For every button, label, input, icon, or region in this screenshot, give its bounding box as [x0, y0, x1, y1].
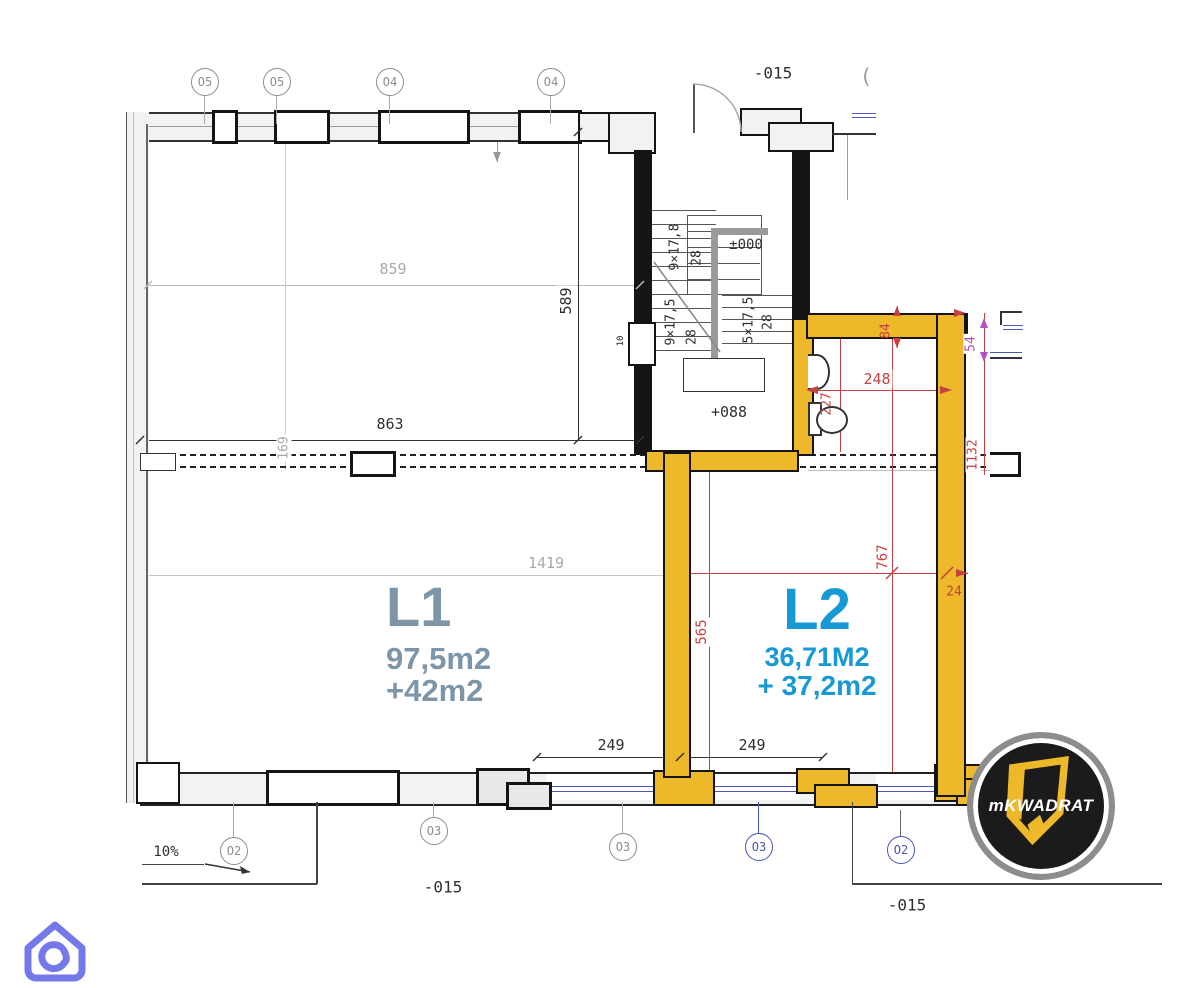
neighbor-line-4	[990, 357, 1022, 359]
dim-248: 248	[861, 370, 892, 388]
grid-line-left	[285, 138, 286, 470]
grid-marker-O2-right: O2	[887, 836, 915, 864]
unit-l2-area: 36,71M2	[747, 643, 887, 671]
dim-169: 169	[277, 434, 292, 461]
wall-continuation-line	[832, 133, 876, 135]
neighbor-wall-mark-2	[1000, 311, 1002, 325]
dim-line-248	[806, 390, 952, 391]
left-wall-line-1	[133, 112, 134, 803]
ramp-bottom-line	[142, 883, 317, 885]
dim-1419: 1419	[526, 554, 566, 572]
glazing-line-2a	[712, 786, 800, 787]
unit-l1-label: L1 97,5m2 +42m2	[386, 578, 491, 708]
top-window-1	[212, 110, 238, 144]
dim-249-left: 249	[595, 736, 626, 754]
bottom-yellow-step-b	[814, 784, 878, 808]
dim-line-1132	[984, 313, 985, 475]
glazing-line-3b	[876, 791, 936, 792]
dim-1132: 1132	[966, 437, 981, 472]
grid-marker-O3-1: O3	[420, 817, 448, 845]
marker-leader	[276, 96, 277, 124]
dashed-axis-1	[140, 454, 1016, 456]
glazing-line-1a	[546, 786, 656, 787]
stair-window	[628, 322, 656, 366]
stair-flight-c-label: 5×17,5	[742, 297, 757, 344]
bottom-opening-1	[546, 774, 656, 800]
tread	[722, 343, 792, 344]
unit-l1-bonus: +42m2	[386, 675, 491, 708]
dim-565: 565	[694, 617, 710, 646]
corner-window	[136, 762, 180, 804]
marker-leader	[622, 802, 623, 833]
grid-marker-O5-2: O5	[263, 68, 291, 96]
handrail-side	[711, 228, 718, 358]
level-label-top: -015	[754, 64, 793, 83]
dim-line-227	[840, 332, 841, 452]
ramp-arrow-line	[205, 864, 250, 872]
stair-tread-c-label: 28	[761, 314, 776, 330]
tread	[652, 210, 716, 211]
l2-right-wall-yellow	[936, 313, 966, 797]
grid-line-stair	[847, 135, 848, 200]
dim-227: 227	[820, 392, 835, 415]
sink	[808, 354, 830, 390]
ramp-slope-line	[142, 864, 204, 865]
neighbor-wall-mark-1	[1000, 311, 1022, 313]
tread	[722, 295, 792, 296]
dim-863: 863	[374, 415, 405, 433]
bottom-window-1	[266, 770, 400, 806]
axis-left-box	[140, 453, 176, 471]
handrail-top	[711, 228, 768, 235]
unit-l1-name: L1	[386, 578, 491, 637]
door-side-wall-b	[768, 122, 834, 152]
mkwadrat-logo: mKWADRAT	[967, 732, 1115, 880]
mkwadrat-logo-text: mKWADRAT	[989, 796, 1094, 816]
unit-l2-label: L2 36,71M2 + 37,2m2	[747, 580, 887, 701]
neighbor-wall-bracket	[990, 452, 1021, 477]
door-leaf	[693, 84, 695, 133]
tread	[722, 331, 792, 332]
level-label-landing: +088	[711, 403, 747, 421]
tread	[652, 322, 716, 323]
marker-leader	[900, 810, 901, 836]
window-mark-10: 10	[616, 336, 626, 347]
stair-wall-left	[634, 150, 652, 455]
grid-marker-O4-1: O4	[376, 68, 404, 96]
stair-landing	[683, 358, 765, 392]
glazing-line-2b	[712, 791, 800, 792]
house-loop-icon	[20, 920, 90, 984]
grid-marker-O4-2: O4	[537, 68, 565, 96]
divider-wall-yellow	[663, 452, 691, 778]
top-window-2	[274, 110, 330, 144]
dim-24: 24	[946, 585, 962, 600]
marker-leader	[233, 802, 234, 837]
neighbor-line-1	[1003, 325, 1023, 326]
grid-marker-partial: (	[860, 64, 872, 88]
stair-flight-a-label: 9×17,5	[664, 299, 679, 346]
glazing-line-1b	[546, 791, 656, 792]
bottom-opening-2	[712, 774, 800, 800]
dim-84: 84	[879, 323, 894, 339]
bottom-opening-3	[876, 774, 936, 800]
unit-l2-bonus: + 37,2m2	[747, 671, 887, 700]
grid-marker-O5-1: O5	[191, 68, 219, 96]
tread	[722, 307, 792, 308]
grid-marker-O3-2: O3	[609, 833, 637, 861]
terrace-bottom-line	[852, 883, 1162, 885]
door-swing-arc	[693, 84, 741, 132]
dim-line-24	[690, 573, 968, 574]
floor-plan: O5 O5 O4 O4 ( -015 O2 O3 O3 O3 O2 -015 -…	[0, 0, 1184, 988]
neighbor-line-2	[1003, 329, 1023, 330]
ramp-right-line	[316, 802, 318, 884]
unit-l1-area: 97,5m2	[386, 643, 491, 676]
tread	[652, 308, 716, 309]
ramp-arrowhead	[240, 866, 250, 874]
dim-589: 589	[557, 285, 575, 316]
top-window-3	[378, 110, 470, 144]
dim-line-589	[578, 128, 579, 440]
grid-marker-O2-left: O2	[220, 837, 248, 865]
axis-column	[350, 451, 396, 477]
unit-l2-name: L2	[747, 580, 887, 641]
grid-marker-O3-3: O3	[745, 833, 773, 861]
tread	[722, 319, 792, 320]
neighbor-line-3	[990, 352, 1022, 353]
dim-line-863	[140, 440, 640, 441]
marker-leader	[433, 802, 434, 817]
utility-line-2	[852, 117, 876, 118]
bottom-window-2b	[506, 782, 552, 810]
tread	[687, 279, 760, 280]
stair-flight-b-label: 9×17,8	[668, 224, 683, 271]
tread	[652, 350, 716, 351]
terrace-left-line	[852, 802, 853, 883]
glazing-line-3a	[876, 786, 936, 787]
stair-wall-right	[792, 150, 810, 318]
stair-tread-a-label: 28	[685, 329, 700, 345]
level-label-bottom-left: -015	[424, 878, 463, 897]
dashed-axis-2	[140, 466, 1016, 468]
marker-leader	[758, 802, 759, 833]
dim-54: 54	[964, 334, 979, 354]
stair-tread-b-label: 28	[690, 250, 705, 266]
marker-leader	[204, 96, 205, 124]
utility-line-1	[852, 113, 876, 114]
top-wall-step-b	[608, 112, 656, 154]
ramp-slope-label: 10%	[153, 844, 178, 860]
level-label-ground: ±000	[729, 237, 763, 253]
dim-859: 859	[377, 260, 408, 278]
dim-767: 767	[875, 542, 891, 571]
marker-leader	[389, 96, 390, 124]
level-label-bottom-right: -015	[888, 896, 927, 915]
dim-249-right: 249	[736, 736, 767, 754]
marker-leader	[550, 96, 551, 124]
